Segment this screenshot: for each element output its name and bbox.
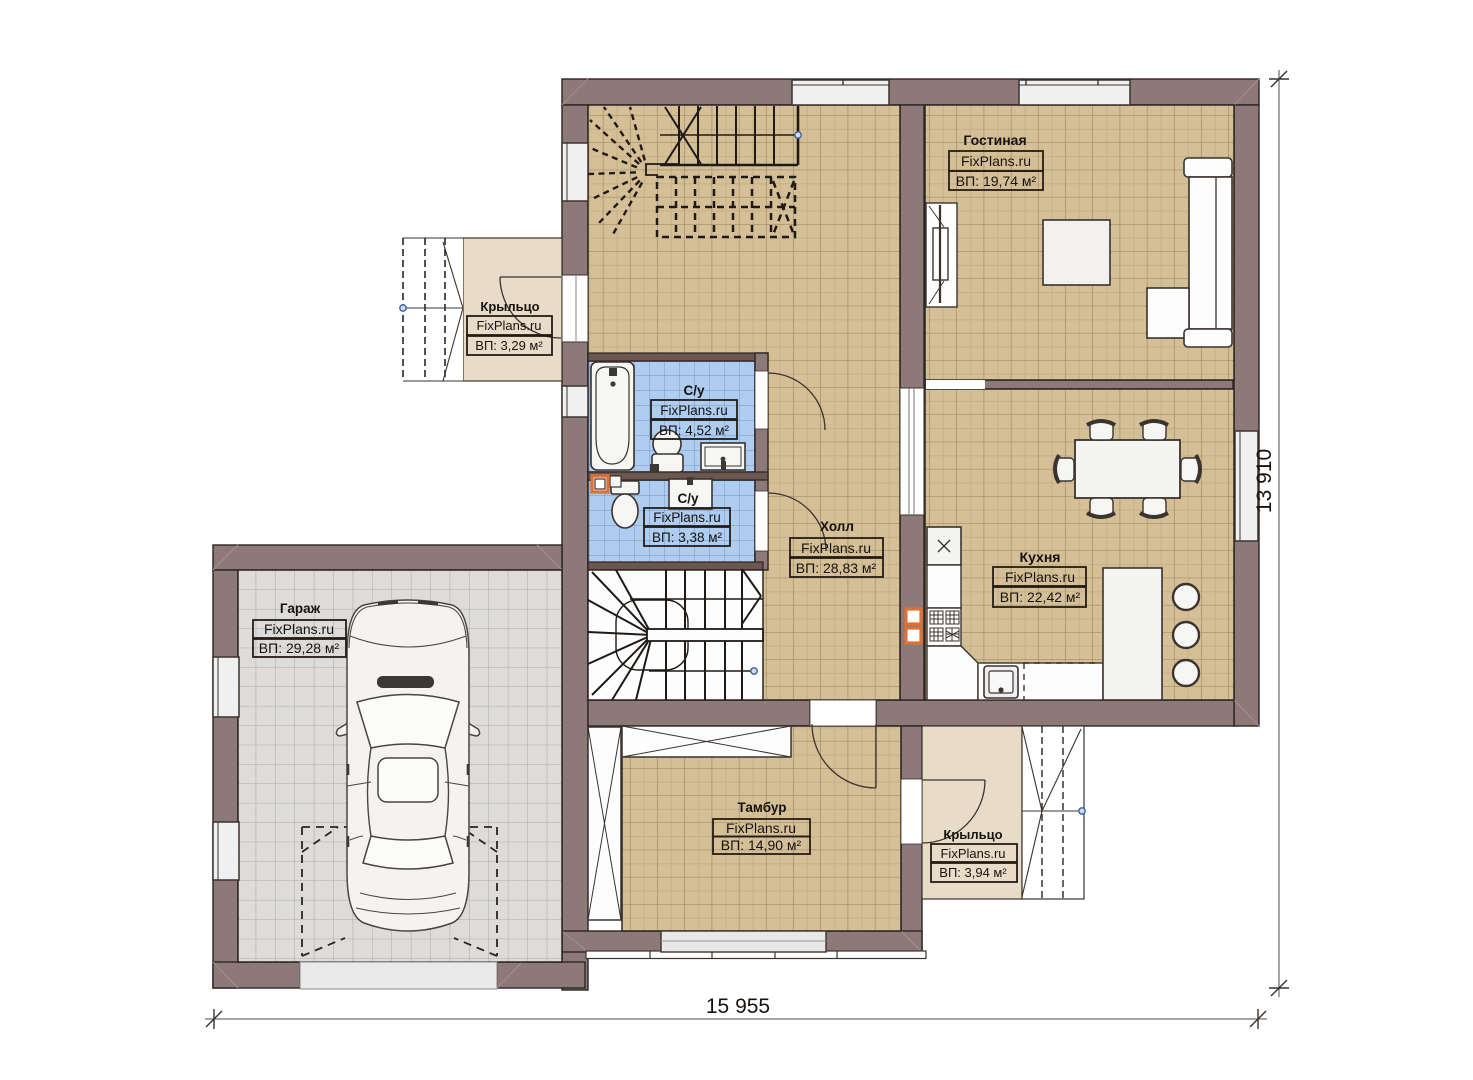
svg-text:FixPlans.ru: FixPlans.ru (801, 540, 871, 556)
svg-text:FixPlans.ru: FixPlans.ru (1005, 569, 1075, 585)
svg-text:Крыльцо: Крыльцо (480, 299, 539, 314)
svg-text:С/у: С/у (677, 491, 699, 506)
svg-text:ВП: 3,94 м²: ВП: 3,94 м² (939, 865, 1007, 880)
svg-text:FixPlans.ru: FixPlans.ru (961, 153, 1031, 169)
svg-text:ВП: 14,90 м²: ВП: 14,90 м² (721, 837, 802, 853)
svg-text:ВП: 3,38 м²: ВП: 3,38 м² (652, 530, 723, 545)
svg-text:С/у: С/у (683, 383, 705, 398)
svg-text:ВП: 3,29 м²: ВП: 3,29 м² (475, 338, 543, 353)
svg-text:Тамбур: Тамбур (738, 800, 787, 815)
svg-text:Кухня: Кухня (1020, 549, 1061, 565)
svg-text:FixPlans.ru: FixPlans.ru (264, 621, 334, 637)
svg-text:ВП: 28,83 м²: ВП: 28,83 м² (796, 560, 877, 576)
svg-text:ВП: 4,52 м²: ВП: 4,52 м² (659, 423, 730, 438)
svg-text:ВП: 19,74 м²: ВП: 19,74 м² (956, 173, 1037, 189)
svg-text:Гостиная: Гостиная (963, 132, 1026, 148)
svg-text:FixPlans.ru: FixPlans.ru (476, 318, 541, 333)
svg-text:13 910: 13 910 (1253, 449, 1276, 513)
svg-text:ВП: 22,42 м²: ВП: 22,42 м² (1000, 589, 1081, 605)
svg-text:FixPlans.ru: FixPlans.ru (660, 403, 728, 418)
svg-text:Гараж: Гараж (280, 601, 321, 616)
svg-text:FixPlans.ru: FixPlans.ru (940, 846, 1005, 861)
svg-text:FixPlans.ru: FixPlans.ru (653, 510, 721, 525)
svg-text:Крыльцо: Крыльцо (943, 827, 1002, 842)
svg-text:FixPlans.ru: FixPlans.ru (726, 820, 796, 836)
svg-text:15 955: 15 955 (706, 995, 770, 1018)
svg-text:Холл: Холл (820, 519, 854, 534)
svg-text:ВП: 29,28 м²: ВП: 29,28 м² (259, 640, 340, 656)
